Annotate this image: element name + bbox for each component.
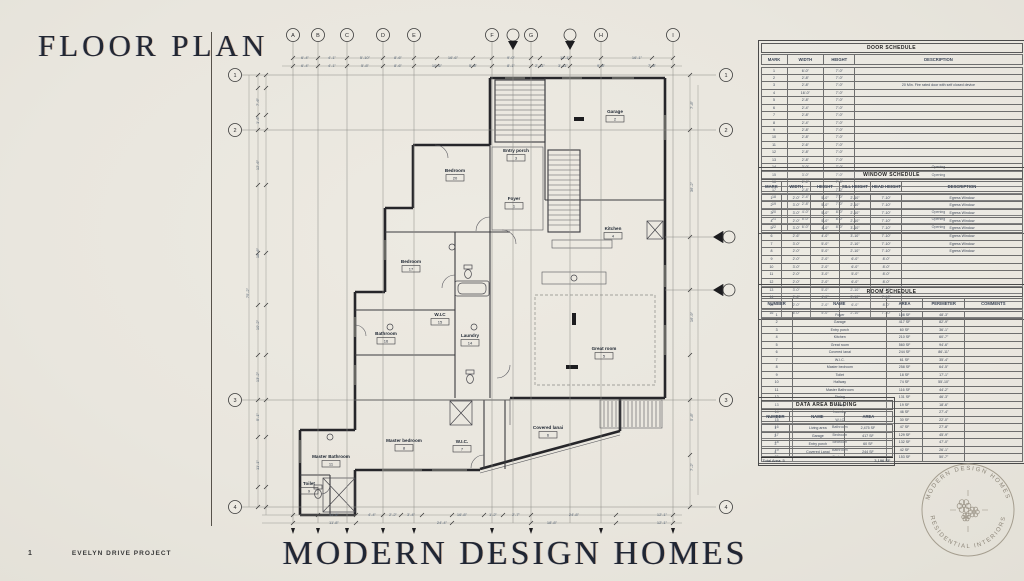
svg-text:5: 5 (603, 354, 606, 359)
dimension-label: 16'-9" (689, 311, 694, 322)
area_schedule-cell: 4 (761, 448, 790, 456)
room-label-bathroom: Bathroom16 (375, 331, 397, 344)
window_schedule-row: 73'-0"5'-0"2'-10"7'-10"Egress Window (761, 240, 1022, 248)
window_schedule-cell: 2'-10" (839, 248, 870, 256)
room_schedule-cell: 1 (761, 311, 792, 319)
sink-fixture (471, 324, 477, 330)
window_schedule-row: 62'-6"4'-0"3'-10"7'-10"Egress Window (761, 232, 1022, 240)
window_schedule-cell: 7'-10" (871, 217, 902, 225)
window_schedule-cell: 3'-10" (839, 225, 870, 233)
grid-bubble-F: F (486, 29, 499, 42)
dimension-label: 16'-1" (632, 55, 643, 60)
designer-stamp: MODERN DESIGN HOMES RESIDENTIAL INTERIOR… (912, 448, 1024, 570)
room_schedule-cell: 18'-6" (923, 401, 965, 409)
dimension-label: 7'-8" (689, 100, 694, 109)
room_schedule-cell: 44'-2" (923, 386, 965, 394)
door_schedule-cell: 2 (761, 74, 787, 81)
svg-text:4: 4 (724, 505, 727, 511)
area_schedule-row: 2Garage417 SF (761, 432, 892, 440)
door_schedule-cell: 7 (761, 112, 787, 119)
door_schedule-cell (855, 112, 1022, 119)
window_schedule-cell: Egress Window (902, 209, 1022, 217)
door_schedule-cell: 2'-4" (787, 119, 824, 126)
room_schedule-row: 2Garage417 SF82'-9" (761, 319, 1022, 327)
door_schedule-column-header: MARK (761, 54, 787, 64)
svg-text:Foyer: Foyer (508, 196, 521, 201)
room_schedule-cell (965, 364, 1022, 372)
window_schedule-cell: 7'-10" (871, 248, 902, 256)
door_schedule-cell: 7'-0" (824, 67, 855, 74)
window_schedule-cell (902, 271, 1022, 279)
appliance-box (647, 221, 663, 239)
room-schedule-title: ROOM SCHEDULE (761, 287, 1023, 297)
window_schedule-cell: 7'-10" (871, 225, 902, 233)
fixtures (314, 117, 663, 512)
window_schedule-row: 53'-0"4'-0"3'-10"7'-10"Egress Window (761, 225, 1022, 233)
footer: 1 EVELYN DRIVE PROJECT (0, 550, 220, 557)
svg-text:2: 2 (614, 117, 617, 122)
svg-text:6: 6 (547, 433, 550, 438)
window_schedule-cell: 2'-6" (782, 232, 811, 240)
area_schedule-cell: 1 (761, 424, 790, 432)
dimension-label: 2'-7" (512, 512, 521, 517)
room_schedule-cell: W.I.C. (792, 356, 886, 364)
dimension-label: 4'-1" (328, 55, 337, 60)
svg-text:1: 1 (513, 204, 516, 209)
room-label-laundry: Laundry14 (461, 333, 480, 346)
grid-bubble-B: B (312, 29, 325, 42)
window_schedule-cell: 7'-10" (871, 194, 902, 202)
svg-text:Covered lanai: Covered lanai (533, 425, 563, 430)
room_schedule-cell (965, 341, 1022, 349)
elevation-marker (713, 231, 735, 243)
room_schedule-cell: 60 SF (886, 326, 923, 334)
area_schedule-column-header: AREA (845, 411, 892, 421)
room_schedule-row: 1Foyer108 SF48'-3" (761, 311, 1022, 319)
door_schedule-row: 82'-4"7'-0" (761, 119, 1022, 126)
window_schedule-cell: 6'-0" (839, 263, 870, 271)
window_schedule-cell: 7'-10" (871, 240, 902, 248)
room_schedule-cell: Kitchen (792, 334, 886, 342)
grid-bubble-E: E (408, 29, 421, 42)
dimension-label: 5'-10" (360, 55, 371, 60)
svg-text:Bathroom: Bathroom (375, 331, 397, 336)
door_schedule-row: 62'-4"7'-0" (761, 104, 1022, 111)
deck-steps-outline (600, 400, 662, 428)
svg-text:16: 16 (384, 339, 389, 344)
grid-bubble-2: 2 (229, 124, 242, 137)
door_schedule-cell: 7'-0" (824, 119, 855, 126)
section-marker (564, 29, 576, 50)
door_schedule-cell: 4 (761, 89, 787, 96)
dimension-label: 7'-8" (648, 63, 657, 68)
door_schedule-cell: 2'-8" (787, 149, 824, 156)
svg-text:H: H (599, 33, 603, 39)
window_schedule-cell: 2'-10" (839, 217, 870, 225)
svg-text:14: 14 (468, 341, 473, 346)
window_schedule-cell: Egress Window (902, 202, 1022, 210)
room-label-great-room: Great room5 (592, 346, 617, 359)
elevation-marker (713, 284, 735, 296)
window_schedule-cell: 3'-0" (782, 263, 811, 271)
room_schedule-cell (965, 424, 1022, 432)
svg-text:Bedroom: Bedroom (445, 168, 465, 173)
door_schedule-cell: 10 (761, 134, 787, 141)
door_schedule-cell: 2'-8" (787, 134, 824, 141)
door_schedule-cell (855, 141, 1022, 148)
door_schedule-cell: 2'-8" (787, 97, 824, 104)
door_schedule-cell: 5 (761, 97, 787, 104)
dimension-label: 16'-8" (457, 512, 468, 517)
room_schedule-cell: Garage (792, 319, 886, 327)
room_schedule-cell (965, 371, 1022, 379)
brand-title: MODERN DESIGN HOMES (282, 535, 747, 573)
room_schedule-cell: Foyer (792, 311, 886, 319)
room_schedule-cell: 3 (761, 326, 792, 334)
room_schedule-row: 8Master bedroom258 SF64'-5" (761, 364, 1022, 372)
window_schedule-cell: 5'-0" (811, 240, 840, 248)
window_schedule-cell: 7 (761, 240, 782, 248)
door_schedule-cell: 12 (761, 149, 787, 156)
window_schedule-row: 82'-0"5'-0"2'-10"7'-10"Egress Window (761, 248, 1022, 256)
window-schedule-title: WINDOW SCHEDULE (761, 170, 1023, 180)
svg-text:9: 9 (308, 489, 311, 494)
door_schedule-cell: 6'-0" (787, 67, 824, 74)
door_schedule-cell: 6 (761, 104, 787, 111)
room_schedule-cell: Toilet (792, 371, 886, 379)
room_schedule-cell: Master bedroom (792, 364, 886, 372)
window_schedule-cell: 3'-0" (782, 240, 811, 248)
room_schedule-cell: 86'-11" (923, 349, 965, 357)
window_schedule-cell: 5'-0" (811, 194, 840, 202)
floor-plan-sheet: { "page": { "title": "FLOOR PLAN", "page… (0, 0, 1024, 581)
dimension-label: 5'-8" (361, 63, 370, 68)
door_schedule-cell (855, 156, 1022, 163)
dimension-label: 10'-2" (255, 319, 260, 330)
total-area-value: 3,196 SF (874, 458, 890, 464)
room_schedule-cell (965, 386, 1022, 394)
room_schedule-cell: 10 (761, 379, 792, 387)
room_schedule-cell: 27'-8" (923, 424, 965, 432)
svg-text:2: 2 (724, 128, 727, 134)
door_schedule-row: 122'-8"7'-0" (761, 149, 1022, 156)
room-label-foyer: Foyer1 (505, 196, 523, 209)
svg-text:Bedroom: Bedroom (401, 259, 421, 264)
sink-fixture (387, 324, 393, 330)
room-label-garage: Garage2 (606, 109, 624, 122)
door_schedule-row: 52'-8"7'-0" (761, 97, 1022, 104)
area_schedule-cell: 244 SF (845, 448, 892, 456)
room_schedule-cell (965, 356, 1022, 364)
shower-box (450, 401, 472, 425)
door_schedule-row: 32'-8"7'-0"20 Min. Fire rated door with … (761, 82, 1022, 89)
dimension-label: 1'-6" (255, 115, 260, 124)
door_schedule-cell (855, 104, 1022, 111)
dimension-label: 18'-8" (547, 520, 558, 525)
room_schedule-cell (965, 431, 1022, 439)
room_schedule-cell: 8 (761, 364, 792, 372)
svg-text:4: 4 (612, 234, 615, 239)
room_schedule-cell: 244 SF (886, 349, 923, 357)
grid-bubble-C: C (341, 29, 354, 42)
svg-text:Toilet: Toilet (303, 481, 315, 486)
door_schedule-cell: 2'-4" (787, 104, 824, 111)
dimension-label: 11'-1" (255, 459, 260, 469)
dimension-label: 5'-8" (689, 412, 694, 421)
svg-text:Garage: Garage (607, 109, 623, 114)
room-label-kitchen: Kitchen4 (604, 226, 622, 239)
door_schedule-row: 102'-8"7'-0" (761, 134, 1022, 141)
area_schedule-row: 1Living area2,475 SF (761, 424, 892, 432)
dimension-label: 8'-6" (394, 63, 403, 68)
room_schedule-cell: 560 SF (886, 341, 923, 349)
window_schedule-cell: 5 (761, 225, 782, 233)
window_schedule-cell: 3'-0" (811, 271, 840, 279)
window_schedule-cell: 8 (761, 248, 782, 256)
svg-text:Great room: Great room (592, 346, 617, 351)
room-label-w-i-c: W.I.C15 (431, 312, 449, 325)
room_schedule-column-header: NAME (792, 298, 886, 308)
window_schedule-cell: Egress Window (902, 217, 1022, 225)
door_schedule-cell: 7'-0" (824, 82, 855, 89)
door_schedule-cell: 16'-0" (787, 89, 824, 96)
window_schedule-cell: 10 (761, 263, 782, 271)
area_schedule-cell: 60 SF (845, 440, 892, 448)
dimension-label: 11'-8" (329, 520, 339, 525)
svg-text:G: G (529, 33, 533, 39)
svg-text:W.I.C.: W.I.C. (456, 439, 469, 444)
svg-text:W.I.C: W.I.C (434, 312, 446, 317)
door_schedule-cell: 2'-8" (787, 82, 824, 89)
dimension-label: 12'-6" (255, 159, 260, 170)
door_schedule-cell: 7'-0" (824, 104, 855, 111)
dimension-label: 7'-2" (689, 462, 694, 471)
room_schedule-cell: 27'-4" (923, 409, 965, 417)
door_schedule-row: 132'-8"7'-0" (761, 156, 1022, 163)
door_schedule-cell (855, 97, 1022, 104)
room_schedule-cell: 48'-3" (923, 311, 965, 319)
window_schedule-cell: 5'-0" (839, 271, 870, 279)
ceiling-dashed-outline (535, 295, 655, 385)
grid-bubble-4: 4 (229, 501, 242, 514)
area_schedule-cell: Living area (790, 424, 845, 432)
room_schedule-cell: 11 (761, 386, 792, 394)
door_schedule-row: 92'-8"7'-0" (761, 127, 1022, 134)
window_schedule-cell: 7'-10" (871, 209, 902, 217)
dimension-label: 2'-2" (389, 512, 398, 517)
dimension-label: 36'-2" (689, 181, 694, 192)
door_schedule-cell (855, 67, 1022, 74)
door_schedule-cell (855, 149, 1022, 156)
room_schedule-cell: 47'-0" (923, 439, 965, 447)
door_schedule-row: 112'-6"7'-0" (761, 141, 1022, 148)
dimension-label: 12'-1" (657, 520, 668, 525)
door_schedule-cell: 3 (761, 82, 787, 89)
door_schedule-row: 416'-0"7'-0" (761, 89, 1022, 96)
grid-bubble-1: 1 (229, 69, 242, 82)
window_schedule-column-header: WIDTH (782, 181, 811, 191)
dimension-label: 10'-6" (432, 63, 443, 68)
room_schedule-cell: 36'-1" (923, 326, 965, 334)
room-label-bedroom: Bedroom20 (445, 168, 465, 181)
room_schedule-cell: 17'-1" (923, 371, 965, 379)
window_schedule-cell: Egress Window (902, 232, 1022, 240)
window_schedule-row: 33'-0"5'-0"2'-10"7'-10"Egress Window (761, 209, 1022, 217)
window_schedule-cell: 8'-0" (871, 263, 902, 271)
stamp-bottom-text: RESIDENTIAL INTERIORS (928, 515, 1007, 550)
dimension-label: 8'-1" (507, 63, 516, 68)
room_schedule-cell: 22'-0" (923, 416, 965, 424)
room_schedule-cell (965, 394, 1022, 402)
window_schedule-cell: 7'-10" (871, 232, 902, 240)
window_schedule-cell: 4'-0" (811, 232, 840, 240)
door_schedule-cell: 7'-0" (824, 112, 855, 119)
bathtub (455, 281, 489, 296)
window_schedule-cell: 11 (761, 271, 782, 279)
floor-plan-drawing: ABCDEFGHI11223344 6'-4"4'-1"5'-10"8'-6"1… (222, 25, 747, 545)
toilet-fixture (466, 370, 474, 383)
dimension-label: 12'-1" (657, 512, 668, 517)
door_schedule-cell: 7'-0" (824, 74, 855, 81)
room_schedule-cell (965, 379, 1022, 387)
room_schedule-cell (965, 416, 1022, 424)
total-area-label: Total Area: 5 (763, 458, 785, 464)
room-label-entry-porch: Entry porch3 (503, 148, 529, 161)
dimension-label: 4'-1" (328, 63, 337, 68)
window_schedule-cell: 2'-0" (782, 217, 811, 225)
dimension-label: 9'-8" (597, 63, 606, 68)
room_schedule-cell (965, 319, 1022, 327)
grid-bubble-3: 3 (720, 394, 733, 407)
window_schedule-cell: 5'-0" (811, 202, 840, 210)
room_schedule-column-header: NUMBER (761, 298, 792, 308)
dimension-label: 13'-2" (255, 371, 260, 382)
door_schedule-cell: 7'-0" (824, 134, 855, 141)
door_schedule-cell: 2'-8" (787, 74, 824, 81)
door_schedule-column-header: DESCRIPTION (855, 54, 1022, 64)
door_schedule-cell: 13 (761, 156, 787, 163)
window_schedule-cell: 3'-0" (782, 209, 811, 217)
floor-plan-svg: ABCDEFGHI11223344 6'-4"4'-1"5'-10"8'-6"1… (222, 25, 747, 545)
window_schedule-cell: 2'-10" (839, 240, 870, 248)
room_schedule-row: 3Entry porch60 SF36'-1" (761, 326, 1022, 334)
grid-bubble-1: 1 (720, 69, 733, 82)
room_schedule-cell: 258 SF (886, 364, 923, 372)
room_schedule-cell: 210 SF (886, 334, 923, 342)
svg-text:Kitchen: Kitchen (605, 226, 622, 231)
room_schedule-cell: Master Bathroom (792, 386, 886, 394)
door_schedule-cell: 2'-8" (787, 156, 824, 163)
window_schedule-cell: 2 (761, 202, 782, 210)
window_schedule-column-header: HEIGHT (811, 181, 840, 191)
svg-text:D: D (381, 33, 385, 39)
svg-text:3: 3 (724, 398, 727, 404)
window_schedule-cell: 9 (761, 256, 782, 264)
room_schedule-cell: 94'-6" (923, 341, 965, 349)
grid-bubble-2: 2 (720, 124, 733, 137)
window_schedule-cell: 2'-10" (839, 194, 870, 202)
room_schedule-cell: 46'-3" (923, 394, 965, 402)
door_schedule-cell: 1 (761, 67, 787, 74)
room_schedule-cell: 60'-7" (923, 334, 965, 342)
room_schedule-row: 4Kitchen210 SF60'-7" (761, 334, 1022, 342)
room_schedule-row: 6Covered lanai244 SF86'-11" (761, 349, 1022, 357)
room-label-toilet: Toilet9 (300, 481, 318, 494)
window_schedule-cell: 2'-0" (782, 271, 811, 279)
area_schedule-row: 4Covered Lanai244 SF (761, 448, 892, 456)
dimension-label: 3'-4" (407, 512, 416, 517)
room_schedule-row: 9Toilet18 SF17'-1" (761, 371, 1022, 379)
svg-text:8: 8 (403, 446, 406, 451)
dimension-label: 5'-8" (469, 63, 478, 68)
dimension-label: 1'-2" (489, 512, 498, 517)
room_schedule-cell: 82'-9" (923, 319, 965, 327)
room_schedule-cell: 4 (761, 334, 792, 342)
area_schedule-row: 3Entry porch60 SF (761, 440, 892, 448)
dimension-label: 75'-2" (245, 287, 250, 298)
window_schedule-cell: 2'-10" (839, 209, 870, 217)
door_schedule-cell: 7'-0" (824, 127, 855, 134)
exterior-walls (300, 78, 665, 515)
window_schedule-cell: 8'-0" (871, 256, 902, 264)
room_schedule-column-header: PERIMETER (923, 298, 965, 308)
door_schedule-cell: 20 Min. Fire rated door with self closed… (855, 82, 1022, 89)
svg-text:Laundry: Laundry (461, 333, 480, 338)
room_schedule-cell (965, 409, 1022, 417)
door_schedule-row: 72'-8"7'-0" (761, 112, 1022, 119)
area_schedule-cell: 2 (761, 432, 790, 440)
window_schedule-cell: 3'-0" (782, 225, 811, 233)
area-schedule-title: DATA AREA BUILDING (761, 400, 893, 410)
svg-text:17: 17 (409, 267, 414, 272)
window_schedule-cell (902, 263, 1022, 271)
window_schedule-row: 42'-0"5'-0"2'-10"7'-10"Egress Window (761, 217, 1022, 225)
window_schedule-column-header: SILL HEIGHT (839, 181, 870, 191)
room_schedule-cell: 61 SF (886, 356, 923, 364)
room-label-bedroom: Bedroom17 (401, 259, 421, 272)
svg-text:4: 4 (233, 505, 236, 511)
room_schedule-row: 11Master Bathroom116 SF44'-2" (761, 386, 1022, 394)
window_schedule-cell: 2'-0" (811, 263, 840, 271)
window_schedule-cell: 4 (761, 217, 782, 225)
door_schedule-column-header: WIDTH (787, 54, 824, 64)
kitchen-sink-fixture (571, 275, 577, 281)
door_schedule-column-header: HEIGHT (824, 54, 855, 64)
svg-text:20: 20 (453, 176, 458, 181)
sink-fixture (449, 244, 455, 250)
project-name: EVELYN DRIVE PROJECT (72, 550, 172, 557)
stamp-circle (922, 464, 1014, 556)
window_schedule-cell: Egress Window (902, 194, 1022, 202)
window_schedule-cell: 5'-0" (811, 217, 840, 225)
door_schedule-row: 16'-0"7'-0" (761, 67, 1022, 74)
toilet-fixture (464, 265, 472, 278)
window_schedule-cell: 8'-0" (871, 271, 902, 279)
grid-bubble-I: I (667, 29, 680, 42)
section-marker (507, 29, 519, 50)
dimension-label: 18'-6" (255, 247, 260, 258)
window_schedule-cell: 3'-10" (839, 232, 870, 240)
door_schedule-cell: 7'-0" (824, 89, 855, 96)
stamp-flower-ornament (950, 490, 988, 532)
window_schedule-row: 103'-0"2'-0"6'-0"8'-0" (761, 263, 1022, 271)
title-divider-rule (211, 32, 212, 526)
room_schedule-cell (965, 349, 1022, 357)
dimension-label: 6'-4" (301, 63, 310, 68)
page-number: 1 (28, 550, 32, 557)
window_schedule-cell: 6'-0" (839, 256, 870, 264)
window_schedule-row: 12'-0"5'-0"2'-10"7'-10"Egress Window (761, 194, 1022, 202)
